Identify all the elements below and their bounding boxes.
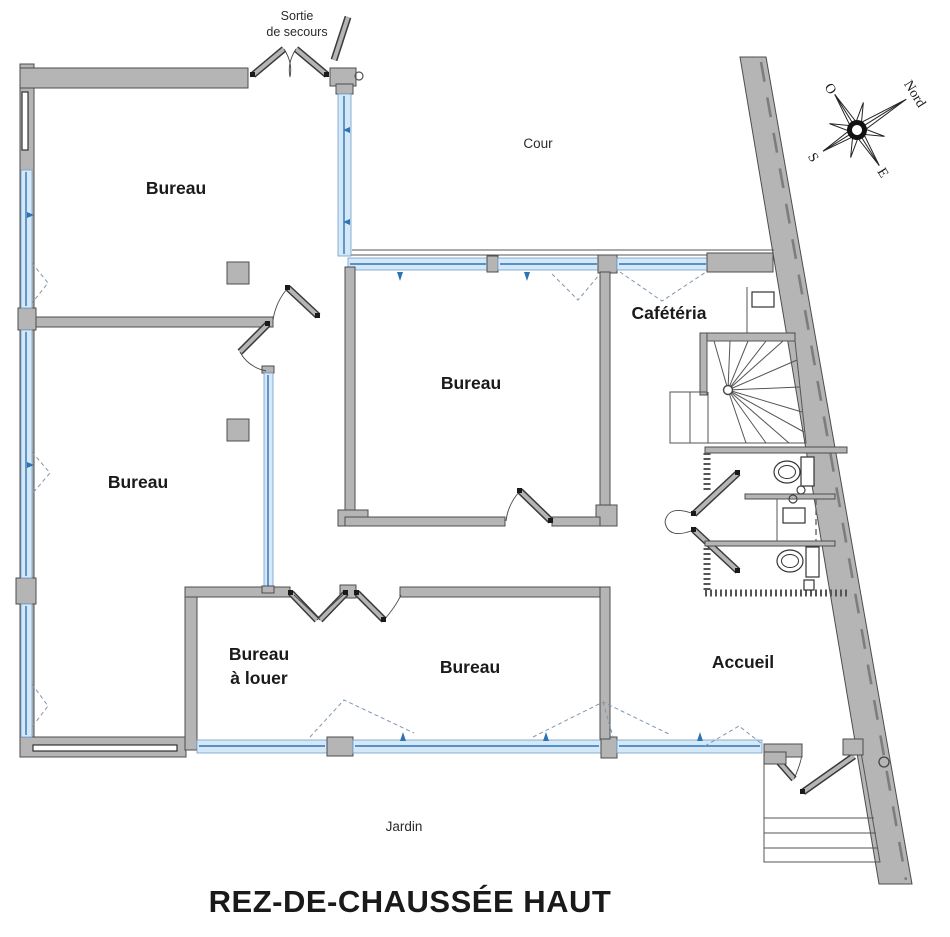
window-opening-indicators	[27, 127, 762, 746]
sink	[783, 508, 805, 523]
cafeteria-label: Cafétéria	[632, 303, 707, 323]
plan-title: REZ-DE-CHAUSSÉE HAUT	[209, 884, 612, 919]
staircase	[670, 333, 806, 443]
accueil-label: Accueil	[712, 652, 774, 672]
exterior-walls	[16, 64, 363, 757]
north-window-band	[336, 84, 773, 273]
cour-label: Cour	[523, 136, 553, 151]
floor-plan: Nord O S E Sortie de secours Cour Jardin…	[0, 0, 950, 937]
bureau-left-label: Bureau	[108, 472, 168, 492]
wc-doors	[665, 470, 740, 573]
west-window-band	[21, 170, 32, 737]
compass-south-label: S	[804, 151, 821, 166]
floor-plan-page: Nord O S E Sortie de secours Cour Jardin…	[0, 0, 950, 937]
toilet-lower	[777, 547, 819, 590]
bureau-top-left-door	[273, 285, 320, 320]
doors	[240, 17, 889, 794]
bureau-bottom-door	[354, 590, 401, 622]
bureau-a-louer-label-line1: Bureau	[229, 644, 289, 664]
sortie-label-line2: de secours	[266, 25, 327, 39]
sortie-label-line1: Sortie	[281, 9, 314, 23]
bureau-a-louer-label-line2: à louer	[230, 668, 288, 688]
bureau-center-door	[506, 488, 553, 523]
compass-west-label: O	[821, 81, 839, 98]
compass-rose: Nord O S E	[777, 44, 949, 207]
hall-partition-door	[240, 321, 270, 371]
compass-east-label: E	[874, 166, 891, 181]
bureau-a-louer-door	[288, 590, 348, 620]
jardin-label: Jardin	[386, 819, 423, 834]
bureau-top-left-label: Bureau	[146, 178, 206, 198]
toilet-upper	[774, 457, 814, 486]
bureau-center-label: Bureau	[441, 373, 501, 393]
south-window-band	[197, 737, 762, 758]
compass-north-label: Nord	[900, 78, 928, 110]
bureau-bottom-label: Bureau	[440, 657, 500, 677]
